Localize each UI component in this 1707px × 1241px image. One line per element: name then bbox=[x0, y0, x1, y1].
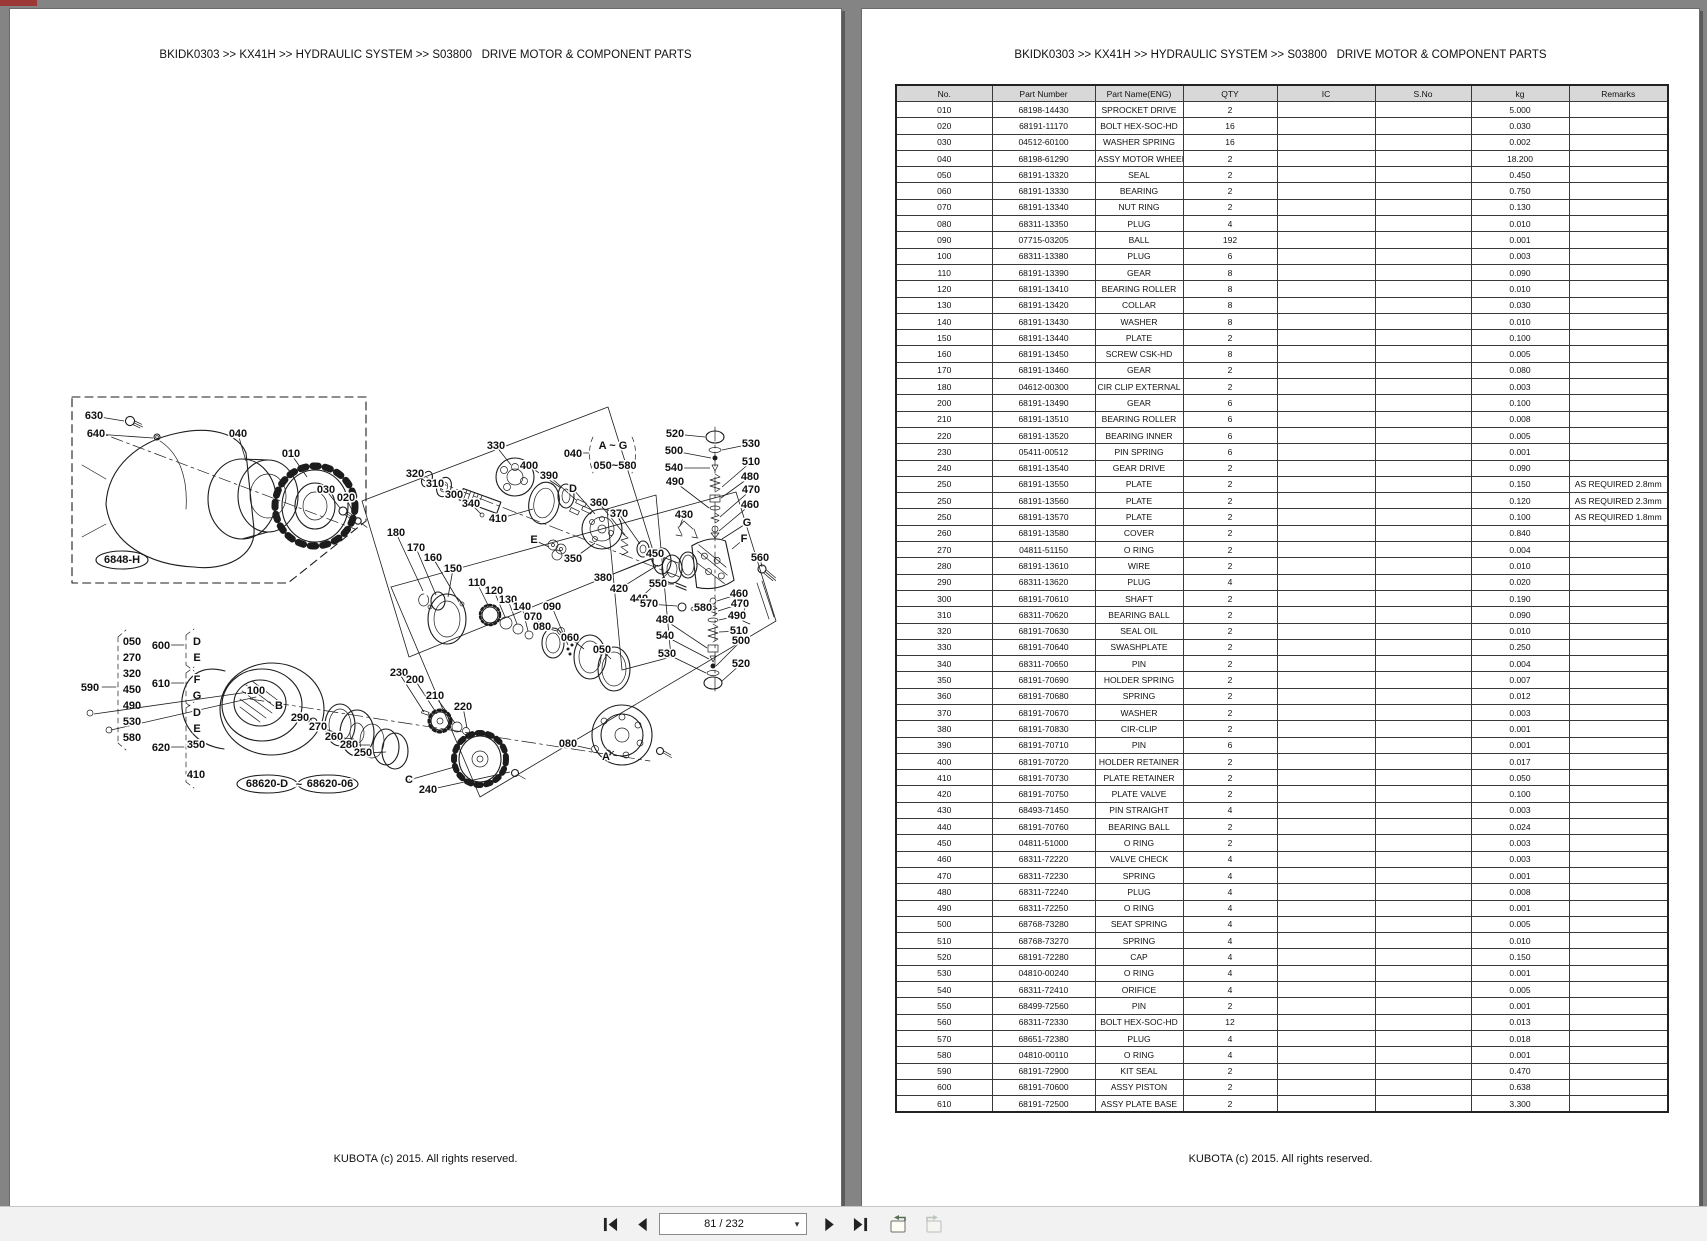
diagram-callout: 580 bbox=[123, 732, 141, 744]
table-row: 26068191-13580COVER20.840 bbox=[896, 525, 1668, 541]
table-cell: 68493-71450 bbox=[992, 802, 1095, 818]
diagram-callout: 080 bbox=[559, 738, 577, 750]
table-cell: 68191-13490 bbox=[992, 395, 1095, 411]
table-cell: 590 bbox=[896, 1063, 992, 1079]
diagram-callout: 460 bbox=[741, 499, 759, 511]
diagram-callout: 340 bbox=[462, 498, 480, 510]
diagram-callout: 310 bbox=[426, 478, 444, 490]
diagram-callout: E bbox=[193, 723, 200, 735]
table-cell bbox=[1375, 379, 1471, 395]
diagram-callout: 590 bbox=[81, 682, 99, 694]
table-cell: 4 bbox=[1183, 916, 1277, 932]
table-cell: 320 bbox=[896, 623, 992, 639]
table-cell bbox=[1375, 395, 1471, 411]
table-cell bbox=[1277, 134, 1375, 150]
diagram-callout: 170 bbox=[407, 542, 425, 554]
diagram-callout: 490 bbox=[666, 476, 684, 488]
table-cell bbox=[1569, 264, 1668, 280]
table-cell bbox=[1375, 1030, 1471, 1046]
table-cell bbox=[1375, 476, 1471, 492]
table-cell bbox=[1569, 998, 1668, 1014]
table-cell bbox=[1277, 639, 1375, 655]
table-cell: 68191-72900 bbox=[992, 1063, 1095, 1079]
table-cell: CIR-CLIP bbox=[1095, 721, 1183, 737]
table-row: 20068191-13490GEAR60.100 bbox=[896, 395, 1668, 411]
table-cell: 68198-14430 bbox=[992, 102, 1095, 118]
table-cell: 0.100 bbox=[1471, 509, 1569, 525]
table-cell bbox=[1277, 281, 1375, 297]
table-cell bbox=[1277, 1014, 1375, 1030]
table-cell: 68191-13450 bbox=[992, 346, 1095, 362]
table-cell bbox=[1375, 737, 1471, 753]
next-page-icon bbox=[823, 1217, 837, 1232]
table-cell: 420 bbox=[896, 786, 992, 802]
table-cell bbox=[1569, 1063, 1668, 1079]
table-cell: 68191-70600 bbox=[992, 1079, 1095, 1095]
table-cell: 4 bbox=[1183, 900, 1277, 916]
table-cell: 110 bbox=[896, 264, 992, 280]
diagram-callout: 540 bbox=[665, 462, 683, 474]
diagram-callout: 370 bbox=[610, 508, 628, 520]
previous-view-button[interactable] bbox=[887, 1213, 909, 1235]
table-cell bbox=[1375, 493, 1471, 509]
table-cell bbox=[1375, 933, 1471, 949]
table-cell: O RING bbox=[1095, 542, 1183, 558]
table-cell bbox=[1569, 786, 1668, 802]
diagram-callout: 530 bbox=[123, 716, 141, 728]
diagram-callout: 020 bbox=[337, 492, 355, 504]
table-cell bbox=[1375, 1079, 1471, 1095]
table-cell: 400 bbox=[896, 753, 992, 769]
table-cell: 0.190 bbox=[1471, 590, 1569, 606]
table-cell: HOLDER SPRING bbox=[1095, 672, 1183, 688]
table-cell bbox=[1375, 297, 1471, 313]
table-cell: 0.010 bbox=[1471, 558, 1569, 574]
page-number-input[interactable]: 81 / 232 ▾ bbox=[659, 1213, 807, 1235]
table-cell bbox=[1375, 199, 1471, 215]
page-dropdown-caret-icon[interactable]: ▾ bbox=[788, 1219, 806, 1230]
table-cell bbox=[1569, 281, 1668, 297]
table-cell bbox=[1277, 379, 1375, 395]
table-cell bbox=[1569, 721, 1668, 737]
table-cell bbox=[1375, 819, 1471, 835]
table-cell: 68191-70640 bbox=[992, 639, 1095, 655]
table-cell bbox=[1569, 460, 1668, 476]
table-cell: 2 bbox=[1183, 770, 1277, 786]
last-page-icon bbox=[852, 1217, 869, 1232]
table-cell bbox=[1569, 933, 1668, 949]
table-cell: PLUG bbox=[1095, 574, 1183, 590]
table-row: 29068311-13620PLUG40.020 bbox=[896, 574, 1668, 590]
table-cell: VALVE CHECK bbox=[1095, 851, 1183, 867]
table-cell bbox=[1569, 297, 1668, 313]
table-cell: 68191-13610 bbox=[992, 558, 1095, 574]
table-cell: 0.005 bbox=[1471, 916, 1569, 932]
diagram-callout: 520 bbox=[666, 428, 684, 440]
table-cell bbox=[1569, 965, 1668, 981]
breadcrumb-title-right: BKIDK0303 >> KX41H >> HYDRAULIC SYSTEM >… bbox=[862, 49, 1699, 61]
diagram-callout: 210 bbox=[426, 690, 444, 702]
table-cell: PLUG bbox=[1095, 1030, 1183, 1046]
table-cell bbox=[1375, 281, 1471, 297]
table-row: 15068191-13440PLATE20.100 bbox=[896, 330, 1668, 346]
table-cell: 68311-13380 bbox=[992, 248, 1095, 264]
table-cell: SEAL bbox=[1095, 167, 1183, 183]
table-cell: 090 bbox=[896, 232, 992, 248]
table-cell: 0.001 bbox=[1471, 232, 1569, 248]
table-cell: 68191-13410 bbox=[992, 281, 1095, 297]
table-cell: 0.090 bbox=[1471, 607, 1569, 623]
table-cell bbox=[1277, 933, 1375, 949]
table-cell bbox=[1277, 884, 1375, 900]
table-cell: 0.100 bbox=[1471, 395, 1569, 411]
table-cell bbox=[1569, 118, 1668, 134]
table-cell: 0.638 bbox=[1471, 1079, 1569, 1095]
table-cell: 250 bbox=[896, 509, 992, 525]
table-cell: PLATE bbox=[1095, 476, 1183, 492]
table-cell bbox=[1569, 1096, 1668, 1112]
table-cell: 04512-60100 bbox=[992, 134, 1095, 150]
table-cell: 68191-13340 bbox=[992, 199, 1095, 215]
table-cell: 6 bbox=[1183, 444, 1277, 460]
table-cell: 0.001 bbox=[1471, 998, 1569, 1014]
table-cell: 2 bbox=[1183, 167, 1277, 183]
table-cell: 4 bbox=[1183, 982, 1277, 998]
table-cell bbox=[1375, 134, 1471, 150]
table-cell: 470 bbox=[896, 867, 992, 883]
table-cell bbox=[1569, 737, 1668, 753]
diagram-callout: 100 bbox=[247, 685, 265, 697]
diagram-callout: 180 bbox=[387, 527, 405, 539]
table-cell bbox=[1569, 982, 1668, 998]
table-cell: BEARING INNER bbox=[1095, 427, 1183, 443]
diagram-callout: 220 bbox=[454, 701, 472, 713]
table-cell: 0.005 bbox=[1471, 427, 1569, 443]
table-cell bbox=[1277, 802, 1375, 818]
table-cell: 410 bbox=[896, 770, 992, 786]
table-cell bbox=[1277, 297, 1375, 313]
parts-table: No. Part Number Part Name(ENG) QTY IC S.… bbox=[895, 84, 1669, 1113]
diagram-callout: 060 bbox=[561, 632, 579, 644]
table-cell bbox=[1375, 574, 1471, 590]
table-row: 61068191-72500ASSY PLATE BASE23.300 bbox=[896, 1096, 1668, 1112]
diagram-callout: 300 bbox=[445, 489, 463, 501]
table-cell bbox=[1569, 867, 1668, 883]
table-cell: 68198-61290 bbox=[992, 150, 1095, 166]
table-row: 03004512-60100WASHER SPRING160.002 bbox=[896, 134, 1668, 150]
table-cell: BEARING bbox=[1095, 183, 1183, 199]
diagram-callout: 410 bbox=[187, 769, 205, 781]
table-cell: 500 bbox=[896, 916, 992, 932]
diagram-callout: 040 bbox=[564, 448, 582, 460]
table-cell bbox=[1277, 102, 1375, 118]
table-cell: SHAFT bbox=[1095, 590, 1183, 606]
next-view-button[interactable] bbox=[923, 1213, 945, 1235]
table-cell: 230 bbox=[896, 444, 992, 460]
table-cell: 0.003 bbox=[1471, 248, 1569, 264]
table-cell bbox=[1375, 867, 1471, 883]
table-cell: 0.050 bbox=[1471, 770, 1569, 786]
table-row: 42068191-70750PLATE VALVE20.100 bbox=[896, 786, 1668, 802]
table-cell: GEAR bbox=[1095, 264, 1183, 280]
table-cell bbox=[1375, 965, 1471, 981]
table-cell bbox=[1277, 216, 1375, 232]
table-cell bbox=[1277, 965, 1375, 981]
diagram-callout: 530 bbox=[742, 438, 760, 450]
next-page-button[interactable] bbox=[819, 1213, 841, 1235]
table-cell: 68311-13350 bbox=[992, 216, 1095, 232]
table-cell: SPRING bbox=[1095, 933, 1183, 949]
table-cell: 2 bbox=[1183, 509, 1277, 525]
table-cell: BEARING BALL bbox=[1095, 607, 1183, 623]
diagram-callout: 500 bbox=[732, 635, 750, 647]
table-cell: BEARING BALL bbox=[1095, 819, 1183, 835]
table-cell: 68311-72250 bbox=[992, 900, 1095, 916]
document-page-left: BKIDK0303 >> KX41H >> HYDRAULIC SYSTEM >… bbox=[9, 8, 842, 1207]
table-cell: 2 bbox=[1183, 1079, 1277, 1095]
diagram-callout: E bbox=[193, 652, 200, 664]
table-cell bbox=[1277, 476, 1375, 492]
table-cell: COLLAR bbox=[1095, 297, 1183, 313]
table-cell: 68768-73270 bbox=[992, 933, 1095, 949]
table-cell: 0.010 bbox=[1471, 281, 1569, 297]
table-cell bbox=[1375, 900, 1471, 916]
table-cell bbox=[1569, 444, 1668, 460]
table-cell: 4 bbox=[1183, 867, 1277, 883]
table-cell: 0.001 bbox=[1471, 444, 1569, 460]
table-cell: 68191-13520 bbox=[992, 427, 1095, 443]
diagram-callout: 320 bbox=[123, 668, 141, 680]
table-cell bbox=[1277, 493, 1375, 509]
diagram-callout: 540 bbox=[656, 630, 674, 642]
table-cell bbox=[1569, 802, 1668, 818]
table-cell bbox=[1277, 753, 1375, 769]
table-cell: 140 bbox=[896, 313, 992, 329]
diagram-callout: 68620-D bbox=[246, 778, 288, 790]
table-cell: WASHER bbox=[1095, 313, 1183, 329]
table-cell: 2 bbox=[1183, 672, 1277, 688]
column-header-kg: kg bbox=[1471, 85, 1569, 102]
table-cell: 460 bbox=[896, 851, 992, 867]
diagram-callout: E bbox=[530, 534, 537, 546]
table-cell: GEAR bbox=[1095, 362, 1183, 378]
table-cell bbox=[1375, 1063, 1471, 1079]
diagram-callout: D bbox=[569, 483, 577, 495]
diagram-callout: B bbox=[275, 700, 283, 712]
table-cell: 020 bbox=[896, 118, 992, 134]
table-cell bbox=[1277, 835, 1375, 851]
table-row: 30068191-70610SHAFT20.190 bbox=[896, 590, 1668, 606]
table-cell bbox=[1569, 916, 1668, 932]
table-cell: 0.250 bbox=[1471, 639, 1569, 655]
table-row: 14068191-13430WASHER80.010 bbox=[896, 313, 1668, 329]
table-cell bbox=[1569, 639, 1668, 655]
table-cell bbox=[1569, 248, 1668, 264]
table-cell: 68191-70750 bbox=[992, 786, 1095, 802]
diagram-callout: C bbox=[405, 774, 413, 786]
table-cell: 0.003 bbox=[1471, 379, 1569, 395]
pdf-viewer: BKIDK0303 >> KX41H >> HYDRAULIC SYSTEM >… bbox=[0, 0, 1707, 1241]
table-cell: 0.001 bbox=[1471, 721, 1569, 737]
diagram-callout: 050 bbox=[123, 636, 141, 648]
page-indicator: 81 / 232 bbox=[660, 1218, 788, 1230]
table-cell: PIN bbox=[1095, 656, 1183, 672]
table-row: 25068191-13570PLATE20.100AS REQUIRED 1.8… bbox=[896, 509, 1668, 525]
table-cell: 04810-00110 bbox=[992, 1047, 1095, 1063]
diagram-callout: 450 bbox=[646, 548, 664, 560]
table-cell: 2 bbox=[1183, 102, 1277, 118]
table-cell: 0.001 bbox=[1471, 900, 1569, 916]
diagram-callout: 390 bbox=[540, 470, 558, 482]
table-cell bbox=[1569, 753, 1668, 769]
table-cell: WIRE bbox=[1095, 558, 1183, 574]
table-cell: 4 bbox=[1183, 965, 1277, 981]
table-cell: HOLDER RETAINER bbox=[1095, 753, 1183, 769]
table-row: 51068768-73270SPRING40.010 bbox=[896, 933, 1668, 949]
table-cell bbox=[1277, 118, 1375, 134]
table-row: 28068191-13610WIRE20.010 bbox=[896, 558, 1668, 574]
table-cell: 310 bbox=[896, 607, 992, 623]
table-cell: PIN STRAIGHT bbox=[1095, 802, 1183, 818]
previous-page-button[interactable] bbox=[631, 1213, 653, 1235]
table-cell: 0.010 bbox=[1471, 216, 1569, 232]
table-cell: SCREW CSK-HD bbox=[1095, 346, 1183, 362]
table-cell: 0.450 bbox=[1471, 167, 1569, 183]
table-cell: 0.010 bbox=[1471, 623, 1569, 639]
table-cell bbox=[1375, 330, 1471, 346]
table-cell: 8 bbox=[1183, 297, 1277, 313]
table-cell: 68651-72380 bbox=[992, 1030, 1095, 1046]
table-cell bbox=[1375, 982, 1471, 998]
table-cell: 4 bbox=[1183, 1030, 1277, 1046]
table-row: 27004811-51150O RING20.004 bbox=[896, 542, 1668, 558]
table-cell: 68191-13580 bbox=[992, 525, 1095, 541]
first-page-button[interactable] bbox=[599, 1213, 621, 1235]
table-cell bbox=[1277, 248, 1375, 264]
table-cell: 130 bbox=[896, 297, 992, 313]
table-cell bbox=[1569, 835, 1668, 851]
table-cell: 2 bbox=[1183, 819, 1277, 835]
table-cell: 520 bbox=[896, 949, 992, 965]
table-cell: 150 bbox=[896, 330, 992, 346]
document-page-right: BKIDK0303 >> KX41H >> HYDRAULIC SYSTEM >… bbox=[861, 8, 1700, 1207]
table-cell: 2 bbox=[1183, 362, 1277, 378]
table-cell: 060 bbox=[896, 183, 992, 199]
table-cell: 68191-70690 bbox=[992, 672, 1095, 688]
table-cell bbox=[1569, 574, 1668, 590]
table-row: 01068198-14430SPROCKET DRIVE25.000 bbox=[896, 102, 1668, 118]
table-cell bbox=[1277, 1063, 1375, 1079]
table-cell: SPROCKET DRIVE bbox=[1095, 102, 1183, 118]
table-cell bbox=[1375, 525, 1471, 541]
table-cell: 0.018 bbox=[1471, 1030, 1569, 1046]
table-cell bbox=[1375, 216, 1471, 232]
table-cell: 04811-51000 bbox=[992, 835, 1095, 851]
table-row: 53004810-00240O RING40.001 bbox=[896, 965, 1668, 981]
table-cell bbox=[1569, 672, 1668, 688]
table-cell: 440 bbox=[896, 819, 992, 835]
table-cell: 4 bbox=[1183, 216, 1277, 232]
diagram-callout: 600 bbox=[152, 640, 170, 652]
table-cell bbox=[1277, 330, 1375, 346]
table-cell: 16 bbox=[1183, 118, 1277, 134]
table-row: 13068191-13420COLLAR80.030 bbox=[896, 297, 1668, 313]
diagram-callout: 420 bbox=[610, 583, 628, 595]
table-cell bbox=[1569, 313, 1668, 329]
table-cell: 050 bbox=[896, 167, 992, 183]
table-cell: AS REQUIRED 1.8mm bbox=[1569, 509, 1668, 525]
last-page-button[interactable] bbox=[849, 1213, 871, 1235]
table-cell bbox=[1375, 656, 1471, 672]
table-cell: 0.001 bbox=[1471, 737, 1569, 753]
table-row: 25068191-13550PLATE20.150AS REQUIRED 2.8… bbox=[896, 476, 1668, 492]
table-cell bbox=[1277, 574, 1375, 590]
table-cell: 18.200 bbox=[1471, 150, 1569, 166]
diagram-callout: 630 bbox=[85, 410, 103, 422]
table-row: 07068191-13340NUT RING20.130 bbox=[896, 199, 1668, 215]
table-cell: 0.003 bbox=[1471, 802, 1569, 818]
table-cell: 0.030 bbox=[1471, 297, 1569, 313]
table-row: 02068191-11170BOLT HEX-SOC-HD160.030 bbox=[896, 118, 1668, 134]
table-cell: 2 bbox=[1183, 330, 1277, 346]
table-cell: 04810-00240 bbox=[992, 965, 1095, 981]
table-cell: O RING bbox=[1095, 965, 1183, 981]
table-row: 08068311-13350PLUG40.010 bbox=[896, 216, 1668, 232]
table-cell bbox=[1277, 623, 1375, 639]
column-header-qty: QTY bbox=[1183, 85, 1277, 102]
table-cell: 0.007 bbox=[1471, 672, 1569, 688]
diagram-callout: ~ bbox=[296, 779, 303, 791]
table-cell: 600 bbox=[896, 1079, 992, 1095]
table-cell: 68191-72500 bbox=[992, 1096, 1095, 1112]
table-cell: PIN bbox=[1095, 737, 1183, 753]
table-cell bbox=[1375, 183, 1471, 199]
table-cell bbox=[1375, 607, 1471, 623]
diagram-callout: 520 bbox=[732, 658, 750, 670]
table-cell: 68191-13390 bbox=[992, 264, 1095, 280]
table-cell: BOLT HEX-SOC-HD bbox=[1095, 118, 1183, 134]
diagram-callout: 6848-H bbox=[104, 554, 140, 566]
table-cell bbox=[1277, 656, 1375, 672]
table-cell: 2 bbox=[1183, 558, 1277, 574]
diagram-callout: G bbox=[743, 517, 752, 529]
diagram-callout: 410 bbox=[489, 513, 507, 525]
table-cell bbox=[1375, 150, 1471, 166]
table-header-row: No. Part Number Part Name(ENG) QTY IC S.… bbox=[896, 85, 1668, 102]
table-cell: 07715-03205 bbox=[992, 232, 1095, 248]
table-cell: WASHER SPRING bbox=[1095, 134, 1183, 150]
table-row: 48068311-72240PLUG40.008 bbox=[896, 884, 1668, 900]
table-cell: 2 bbox=[1183, 183, 1277, 199]
table-cell: 2 bbox=[1183, 525, 1277, 541]
table-cell: 2 bbox=[1183, 786, 1277, 802]
table-cell: 2 bbox=[1183, 493, 1277, 509]
table-cell bbox=[1375, 1014, 1471, 1030]
table-row: 57068651-72380PLUG40.018 bbox=[896, 1030, 1668, 1046]
table-cell: 68191-13560 bbox=[992, 493, 1095, 509]
table-row: 04068198-61290ASSY MOTOR WHEEL218.200 bbox=[896, 150, 1668, 166]
table-cell bbox=[1569, 395, 1668, 411]
table-row: 59068191-72900KIT SEAL20.470 bbox=[896, 1063, 1668, 1079]
table-cell bbox=[1375, 542, 1471, 558]
table-cell: 68191-70670 bbox=[992, 704, 1095, 720]
copyright-footer-left: KUBOTA (c) 2015. All rights reserved. bbox=[10, 1153, 841, 1165]
table-cell: 0.024 bbox=[1471, 819, 1569, 835]
table-cell bbox=[1277, 395, 1375, 411]
table-row: 60068191-70600ASSY PISTON20.638 bbox=[896, 1079, 1668, 1095]
table-cell: O RING bbox=[1095, 900, 1183, 916]
table-cell: 68191-13440 bbox=[992, 330, 1095, 346]
